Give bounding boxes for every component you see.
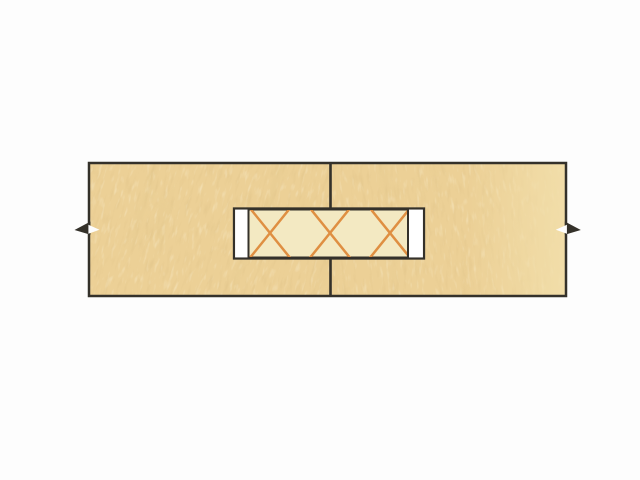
slot-gap-right — [408, 210, 423, 258]
diagram-canvas — [0, 0, 640, 480]
slot-gap-left — [235, 210, 248, 258]
biscuit-joint-diagram — [0, 0, 640, 480]
right-board-plain-area — [468, 163, 566, 296]
